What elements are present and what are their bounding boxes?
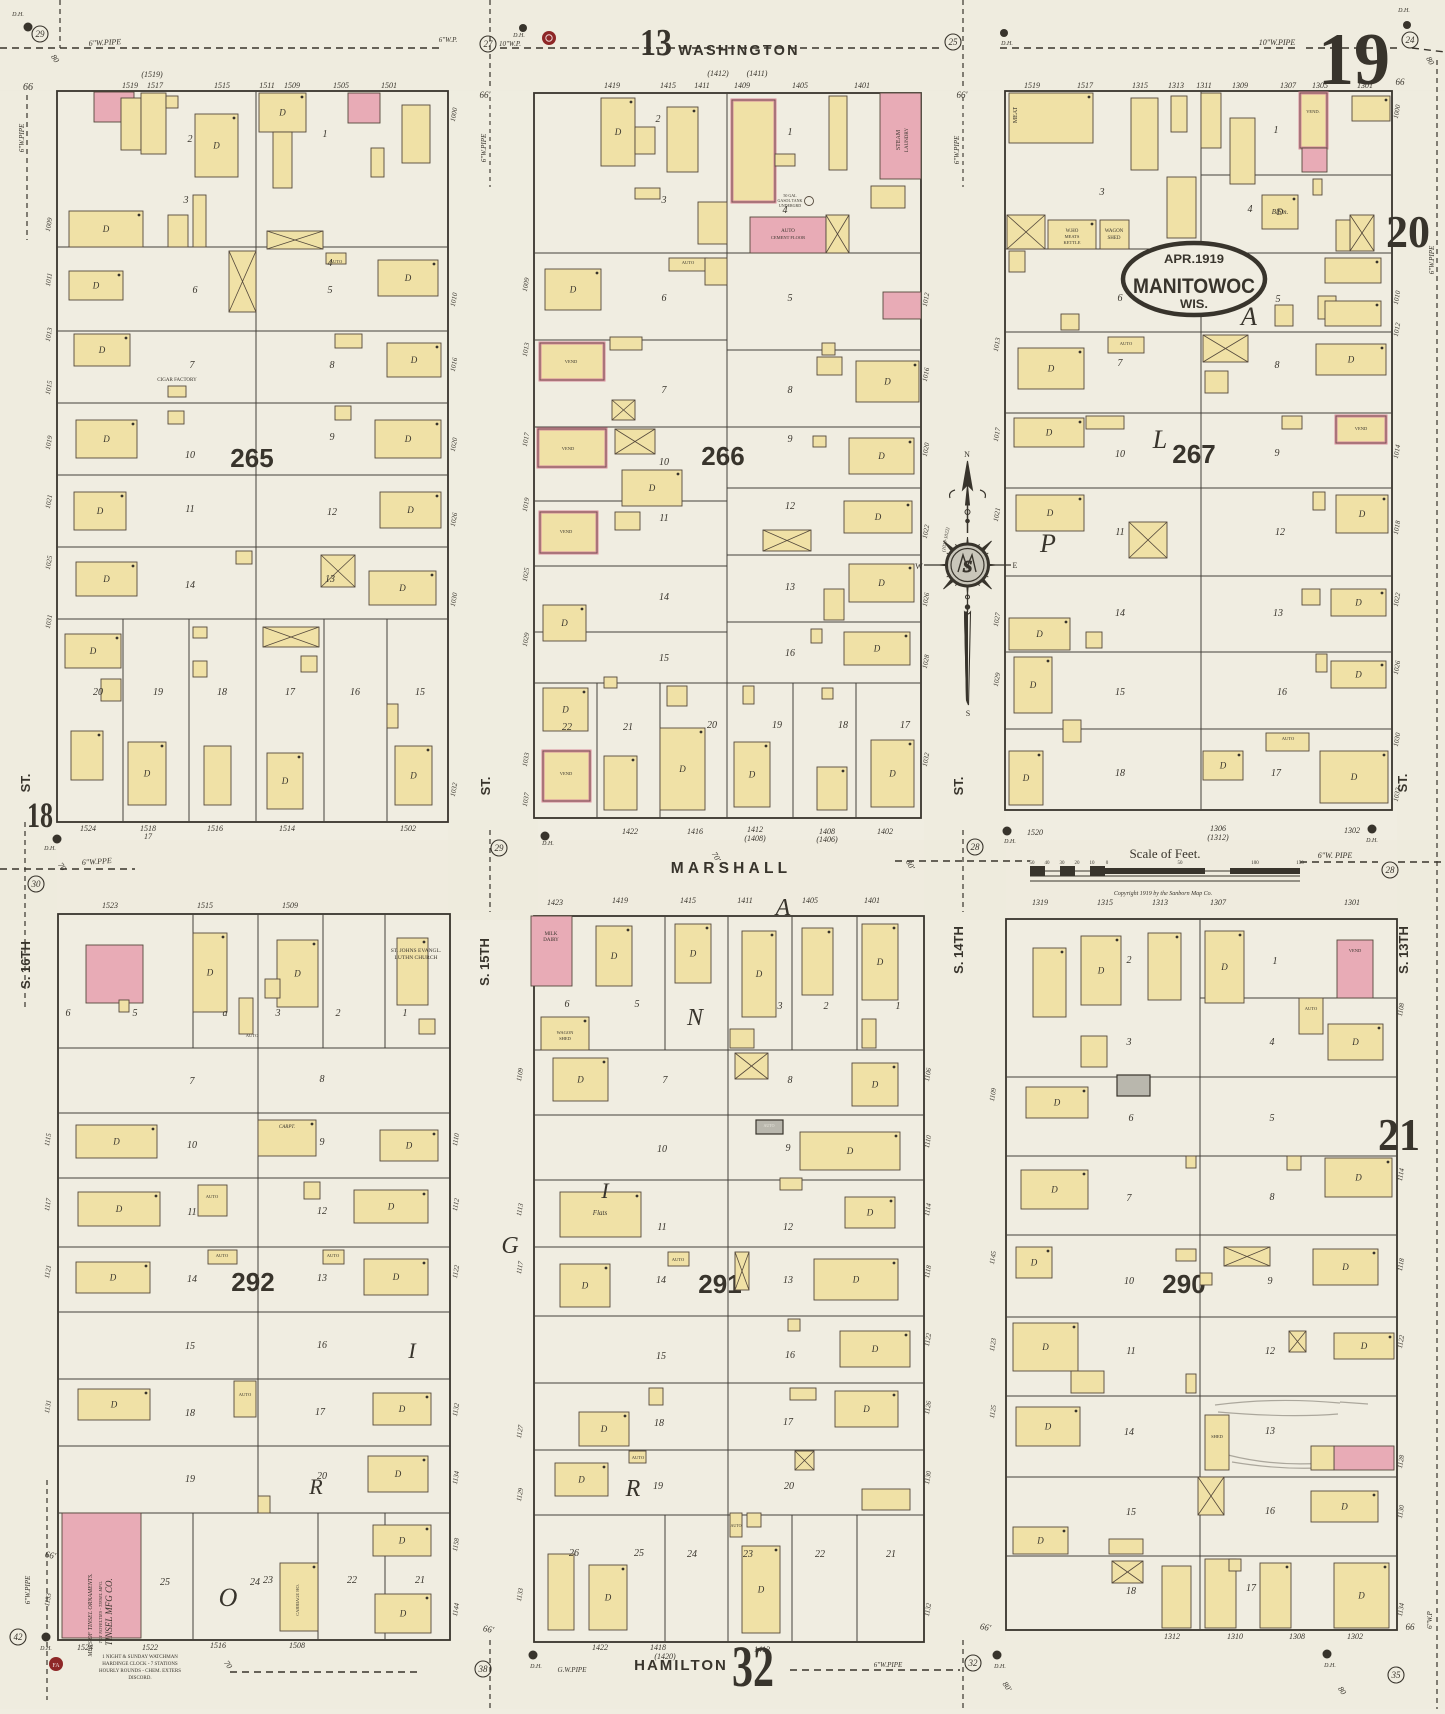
svg-text:19: 19 [772, 720, 782, 731]
svg-text:D: D [577, 1475, 585, 1485]
svg-text:23: 23 [263, 1575, 273, 1586]
svg-text:HOURLY ROUNDS - CHEM. EXTERS: HOURLY ROUNDS - CHEM. EXTERS [99, 1669, 181, 1674]
svg-text:D: D [1050, 1185, 1058, 1195]
svg-text:42: 42 [14, 1632, 24, 1642]
svg-text:6"W.PIPE: 6"W.PIPE [88, 37, 121, 48]
svg-text:21: 21 [886, 1549, 896, 1560]
svg-text:ST.: ST. [478, 777, 493, 796]
svg-text:1301: 1301 [1357, 81, 1373, 90]
svg-text:(1411): (1411) [747, 69, 768, 78]
svg-text:TOY NOVELTIES - TINSEL MFG.: TOY NOVELTIES - TINSEL MFG. [98, 1581, 103, 1644]
svg-text:10: 10 [1124, 1276, 1134, 1287]
svg-text:1401: 1401 [854, 81, 870, 90]
svg-text:AUTO: AUTO [763, 1123, 774, 1128]
svg-text:A: A [774, 895, 791, 921]
svg-text:CARPT.: CARPT. [279, 1125, 295, 1130]
svg-text:ST. JOHNS EVANGL.: ST. JOHNS EVANGL. [391, 948, 442, 954]
svg-text:30: 30 [31, 879, 42, 889]
svg-text:1: 1 [896, 1001, 901, 1012]
svg-text:D: D [398, 1404, 406, 1414]
svg-text:12: 12 [317, 1206, 327, 1217]
svg-text:16: 16 [1265, 1506, 1275, 1517]
svg-text:D: D [398, 1536, 406, 1546]
svg-text:2: 2 [188, 134, 193, 145]
svg-text:D: D [92, 281, 100, 291]
svg-text:1302: 1302 [1344, 826, 1360, 835]
svg-text:LUTHN CHURCH: LUTHN CHURCH [395, 955, 438, 961]
svg-text:19: 19 [153, 687, 163, 698]
svg-text:HARDINGE CLOCK - 7 STATIONS: HARDINGE CLOCK - 7 STATIONS [102, 1662, 178, 1667]
svg-text:D.H.: D.H. [512, 33, 525, 39]
svg-text:AUTO: AUTO [1305, 1006, 1318, 1011]
svg-text:D: D [1219, 761, 1227, 771]
svg-text:1307: 1307 [1210, 898, 1227, 907]
svg-text:28: 28 [971, 842, 981, 852]
svg-text:18: 18 [185, 1408, 195, 1419]
svg-text:VEND.: VEND. [1306, 109, 1320, 114]
svg-text:15: 15 [415, 687, 425, 698]
svg-text:1422: 1422 [592, 1643, 608, 1652]
svg-text:1416: 1416 [687, 827, 703, 836]
svg-text:3: 3 [183, 195, 189, 206]
svg-text:D: D [748, 770, 756, 780]
svg-text:6"W.PIPE: 6"W.PIPE [874, 1661, 903, 1669]
svg-text:VEND: VEND [565, 359, 578, 364]
svg-text:D: D [1041, 1342, 1049, 1352]
svg-text:18: 18 [838, 720, 848, 731]
svg-text:32: 32 [732, 1634, 774, 1699]
svg-text:D.H.: D.H. [1323, 1663, 1336, 1669]
svg-text:D: D [1220, 962, 1228, 972]
svg-text:11: 11 [1126, 1346, 1135, 1357]
svg-text:6: 6 [565, 999, 570, 1010]
svg-text:1312: 1312 [1164, 1632, 1180, 1641]
svg-text:AUTO: AUTO [1282, 736, 1295, 741]
svg-text:1515: 1515 [214, 81, 230, 90]
svg-text:D: D [569, 285, 577, 295]
svg-text:5: 5 [328, 285, 333, 296]
svg-text:D: D [392, 1272, 400, 1282]
svg-text:15: 15 [1126, 1507, 1136, 1518]
svg-text:16: 16 [785, 648, 795, 659]
svg-text:1310: 1310 [1227, 1632, 1243, 1641]
svg-text:D: D [678, 764, 686, 774]
svg-text:(1408): (1408) [744, 834, 766, 843]
svg-text:10: 10 [185, 450, 195, 461]
svg-text:290: 290 [1162, 1269, 1205, 1299]
svg-text:1: 1 [403, 1008, 408, 1019]
svg-text:17: 17 [1271, 768, 1282, 779]
svg-text:LAUNDRY: LAUNDRY [905, 128, 910, 153]
svg-text:D: D [96, 506, 104, 516]
svg-text:66: 66 [23, 82, 33, 93]
svg-text:6: 6 [662, 293, 667, 304]
svg-text:1517: 1517 [147, 81, 164, 90]
svg-text:5: 5 [1276, 294, 1281, 305]
svg-text:DISCORD.: DISCORD. [128, 1676, 151, 1681]
svg-text:1520: 1520 [1027, 828, 1043, 837]
svg-text:266: 266 [701, 441, 744, 471]
svg-text:(1519): (1519) [141, 70, 163, 79]
svg-text:9: 9 [788, 434, 793, 445]
svg-text:10: 10 [1090, 861, 1096, 866]
svg-text:16: 16 [317, 1340, 327, 1351]
svg-text:D: D [576, 1075, 584, 1085]
svg-text:D: D [406, 505, 414, 515]
svg-text:6: 6 [193, 285, 198, 296]
svg-text:1516: 1516 [210, 1641, 226, 1650]
svg-text:18: 18 [217, 687, 227, 698]
svg-text:1301: 1301 [1344, 898, 1360, 907]
svg-text:D.H.: D.H. [993, 1664, 1006, 1670]
svg-text:6: 6 [1118, 293, 1123, 304]
svg-text:R: R [625, 1476, 641, 1502]
svg-text:D: D [1035, 629, 1043, 639]
svg-text:1401: 1401 [864, 896, 880, 905]
svg-text:3: 3 [1126, 1037, 1132, 1048]
svg-text:17: 17 [783, 1417, 794, 1428]
svg-text:12: 12 [327, 507, 337, 518]
svg-text:L: L [1152, 425, 1167, 454]
svg-text:20: 20 [93, 687, 103, 698]
svg-text:N: N [686, 1005, 705, 1031]
svg-text:D: D [1360, 1341, 1368, 1351]
svg-text:APR.1919: APR.1919 [1164, 252, 1224, 266]
svg-text:D: D [866, 1208, 874, 1218]
svg-text:BlSm.: BlSm. [1272, 208, 1289, 216]
svg-text:19: 19 [185, 1474, 195, 1485]
svg-text:24: 24 [687, 1549, 697, 1560]
svg-text:13: 13 [640, 22, 672, 64]
svg-text:D: D [212, 141, 220, 151]
svg-text:40: 40 [1045, 861, 1051, 866]
svg-text:D: D [110, 1400, 118, 1410]
svg-text:AUTO: AUTO [216, 1253, 229, 1258]
svg-text:18: 18 [27, 795, 53, 835]
svg-text:D: D [846, 1146, 854, 1156]
svg-text:21: 21 [1378, 1109, 1420, 1160]
svg-text:AUTO: AUTO [672, 1257, 685, 1262]
svg-text:D: D [404, 434, 412, 444]
svg-text:20: 20 [784, 1481, 794, 1492]
svg-text:14: 14 [185, 580, 195, 591]
svg-text:17: 17 [144, 832, 153, 841]
svg-text:D: D [394, 1469, 402, 1479]
svg-text:D: D [281, 776, 289, 786]
svg-text:25: 25 [949, 37, 959, 47]
svg-text:100: 100 [1251, 861, 1259, 866]
svg-text:D: D [610, 951, 618, 961]
svg-text:Flats: Flats [592, 1209, 608, 1217]
svg-text:10: 10 [187, 1140, 197, 1151]
svg-text:10: 10 [659, 457, 669, 468]
svg-text:D: D [1045, 428, 1053, 438]
svg-text:19: 19 [653, 1481, 663, 1492]
svg-text:11: 11 [187, 1207, 196, 1218]
svg-text:2: 2 [824, 1001, 829, 1012]
svg-text:50: 50 [1178, 861, 1184, 866]
svg-text:66: 66 [1396, 77, 1406, 87]
svg-text:WAGON: WAGON [1105, 229, 1124, 234]
svg-text:1516: 1516 [207, 824, 223, 833]
svg-text:D: D [888, 769, 896, 779]
svg-text:265: 265 [230, 443, 273, 473]
svg-text:D: D [102, 224, 110, 234]
svg-text:G: G [501, 1233, 518, 1259]
svg-text:S. 14TH: S. 14TH [951, 926, 966, 974]
svg-text:1523: 1523 [102, 901, 118, 910]
svg-text:25: 25 [634, 1548, 644, 1559]
svg-text:MANITOWOC: MANITOWOC [1133, 275, 1255, 298]
svg-text:4: 4 [1270, 1037, 1275, 1048]
svg-text:D: D [387, 1202, 395, 1212]
svg-text:20: 20 [1075, 861, 1081, 866]
svg-text:6"W.P.: 6"W.P. [439, 36, 458, 44]
svg-text:12: 12 [1275, 527, 1285, 538]
svg-text:5: 5 [788, 293, 793, 304]
svg-text:AUTO: AUTO [246, 1033, 259, 1038]
svg-text:SHED: SHED [1211, 1434, 1224, 1439]
svg-text:27: 27 [484, 39, 494, 49]
svg-text:9: 9 [330, 432, 335, 443]
svg-text:13: 13 [785, 582, 795, 593]
svg-text:13: 13 [317, 1273, 327, 1284]
svg-text:21: 21 [415, 1575, 425, 1586]
svg-text:AUTO: AUTO [730, 1523, 741, 1528]
svg-text:1319: 1319 [1032, 898, 1048, 907]
svg-text:G.W.PIPE: G.W.PIPE [558, 1666, 588, 1674]
svg-text:D: D [873, 644, 881, 654]
svg-text:1: 1 [788, 127, 793, 138]
svg-text:D: D [877, 451, 885, 461]
svg-text:22: 22 [562, 722, 572, 733]
svg-text:6"W.PIPE: 6"W.PIPE [18, 123, 26, 152]
svg-text:1418: 1418 [650, 1643, 666, 1652]
svg-text:D: D [112, 1137, 120, 1147]
svg-text:AUTO: AUTO [632, 1455, 645, 1460]
svg-text:AUTO: AUTO [1120, 341, 1133, 346]
svg-text:TINSEL MFG CO.: TINSEL MFG CO. [104, 1578, 114, 1646]
svg-text:D: D [757, 1585, 765, 1595]
svg-text:D: D [404, 273, 412, 283]
svg-text:1415: 1415 [660, 81, 676, 90]
svg-text:D: D [1354, 1173, 1362, 1183]
svg-text:6"W.PIPE: 6"W.PIPE [24, 1575, 32, 1604]
svg-text:S. 13TH: S. 13TH [1396, 926, 1411, 974]
svg-text:1511: 1511 [259, 81, 274, 90]
svg-text:AUTO: AUTO [682, 260, 695, 265]
svg-text:13: 13 [783, 1275, 793, 1286]
svg-text:3: 3 [777, 1001, 783, 1012]
svg-text:D: D [1022, 773, 1030, 783]
svg-text:D: D [1340, 1502, 1348, 1512]
svg-text:E: E [1013, 561, 1018, 570]
svg-text:D: D [614, 127, 622, 137]
svg-text:D: D [1341, 1262, 1349, 1272]
svg-text:29: 29 [36, 29, 46, 39]
svg-text:1412: 1412 [754, 1645, 770, 1654]
svg-text:1315: 1315 [1132, 81, 1148, 90]
svg-text:35: 35 [1391, 1670, 1402, 1680]
svg-text:20: 20 [707, 720, 717, 731]
svg-text:D: D [1044, 1422, 1052, 1432]
svg-text:24: 24 [250, 1577, 260, 1588]
svg-text:SHED: SHED [559, 1036, 572, 1041]
svg-text:a: a [223, 1008, 228, 1019]
svg-text:22: 22 [815, 1549, 825, 1560]
svg-text:D: D [877, 578, 885, 588]
svg-text:1305: 1305 [1312, 81, 1328, 90]
svg-text:D.H.: D.H. [39, 1646, 52, 1652]
svg-text:VEND: VEND [1355, 426, 1368, 431]
svg-text:1509: 1509 [284, 81, 300, 90]
svg-text:D: D [89, 646, 97, 656]
svg-text:AUTO: AUTO [206, 1194, 219, 1199]
svg-text:D: D [600, 1424, 608, 1434]
svg-text:DAIRY: DAIRY [543, 938, 559, 943]
svg-text:1307: 1307 [1280, 81, 1297, 90]
svg-text:FA: FA [52, 1663, 60, 1669]
svg-text:D.H.: D.H. [1365, 838, 1378, 844]
svg-text:1508: 1508 [289, 1641, 305, 1650]
svg-text:(1412): (1412) [707, 69, 729, 78]
svg-text:D: D [115, 1204, 123, 1214]
svg-text:O: O [219, 1583, 238, 1612]
svg-text:2: 2 [1127, 955, 1132, 966]
svg-text:D: D [102, 574, 110, 584]
svg-text:D: D [874, 512, 882, 522]
svg-text:D: D [561, 705, 569, 715]
svg-text:1415: 1415 [680, 896, 696, 905]
svg-text:6"W.P: 6"W.P [1426, 1610, 1434, 1628]
svg-text:1524: 1524 [77, 1643, 93, 1652]
svg-text:30: 30 [1060, 861, 1066, 866]
svg-text:3: 3 [275, 1008, 281, 1019]
svg-text:1505: 1505 [333, 81, 349, 90]
svg-text:AUTO: AUTO [327, 1253, 340, 1258]
svg-text:VEND: VEND [560, 771, 573, 776]
svg-text:22: 22 [347, 1575, 357, 1586]
svg-text:8: 8 [788, 385, 793, 396]
svg-text:1419: 1419 [612, 896, 628, 905]
svg-text:MILK: MILK [545, 932, 558, 937]
svg-text:1412: 1412 [747, 825, 763, 834]
svg-text:267: 267 [1172, 439, 1215, 469]
svg-text:D: D [1351, 1037, 1359, 1047]
svg-text:12: 12 [785, 501, 795, 512]
svg-text:D: D [1347, 355, 1355, 365]
svg-text:1522: 1522 [142, 1643, 158, 1652]
svg-text:D: D [206, 968, 214, 978]
svg-text:1313: 1313 [1152, 898, 1168, 907]
svg-text:13: 13 [1265, 1426, 1275, 1437]
svg-text:292: 292 [231, 1267, 274, 1297]
svg-text:MARSHALL: MARSHALL [671, 860, 792, 877]
svg-text:D: D [109, 1273, 117, 1283]
svg-text:D.H.: D.H. [529, 1664, 542, 1670]
svg-text:D: D [1046, 508, 1054, 518]
svg-text:VEND: VEND [1349, 948, 1362, 953]
svg-text:1302: 1302 [1347, 1632, 1363, 1641]
svg-text:12: 12 [1265, 1346, 1275, 1357]
svg-text:D: D [862, 1404, 870, 1414]
svg-text:9: 9 [320, 1137, 325, 1148]
svg-text:21: 21 [623, 722, 633, 733]
svg-text:D.H.: D.H. [1003, 839, 1016, 845]
svg-text:1: 1 [1274, 125, 1279, 136]
svg-text:23: 23 [743, 1549, 753, 1560]
svg-text:17: 17 [1246, 1583, 1257, 1594]
svg-text:66': 66' [480, 90, 492, 100]
svg-text:5: 5 [133, 1008, 138, 1019]
svg-text:29: 29 [495, 843, 505, 853]
svg-text:11: 11 [659, 513, 668, 524]
svg-text:WASHINGTON: WASHINGTON [678, 43, 800, 59]
svg-text:MEATS: MEATS [1065, 234, 1080, 239]
svg-text:1309: 1309 [1232, 81, 1248, 90]
svg-text:1517: 1517 [1077, 81, 1094, 90]
svg-text:17: 17 [900, 720, 911, 731]
svg-text:(1312): (1312) [1207, 833, 1229, 842]
svg-text:S: S [966, 709, 970, 718]
svg-text:16: 16 [350, 687, 360, 698]
svg-text:1514: 1514 [279, 824, 295, 833]
svg-text:D: D [1354, 670, 1362, 680]
svg-text:STEAM: STEAM [896, 129, 902, 150]
svg-text:4: 4 [1248, 204, 1253, 215]
svg-text:1308: 1308 [1289, 1632, 1305, 1641]
svg-text:D: D [1030, 1258, 1038, 1268]
svg-text:11: 11 [657, 1222, 666, 1233]
svg-text:17: 17 [315, 1407, 326, 1418]
svg-text:VEND: VEND [562, 446, 575, 451]
svg-text:D: D [1097, 966, 1105, 976]
svg-text:AUTO: AUTO [239, 1392, 252, 1397]
svg-text:MEAT: MEAT [1013, 107, 1019, 124]
svg-text:CIGAR FACTORY: CIGAR FACTORY [157, 378, 197, 383]
svg-text:R: R [308, 1474, 323, 1499]
svg-text:1411: 1411 [737, 896, 752, 905]
svg-text:1501: 1501 [381, 81, 397, 90]
svg-text:13: 13 [325, 574, 335, 585]
svg-text:1 NIGHT & SUNDAY WATCHMAN: 1 NIGHT & SUNDAY WATCHMAN [102, 1655, 178, 1660]
svg-text:1519: 1519 [122, 81, 138, 90]
svg-text:8: 8 [788, 1075, 793, 1086]
svg-text:28: 28 [1386, 865, 1396, 875]
svg-text:1422: 1422 [622, 827, 638, 836]
svg-text:D: D [1036, 1536, 1044, 1546]
svg-text:D: D [883, 377, 891, 387]
svg-text:HAMILTON: HAMILTON [634, 1657, 728, 1674]
svg-text:19: 19 [1318, 19, 1390, 101]
svg-text:10: 10 [1115, 449, 1125, 460]
svg-text:D: D [871, 1080, 879, 1090]
svg-text:3: 3 [1099, 187, 1105, 198]
svg-text:ST.: ST. [18, 774, 33, 793]
svg-text:6: 6 [66, 1008, 71, 1019]
svg-text:D: D [143, 769, 151, 779]
svg-text:1315: 1315 [1097, 898, 1113, 907]
svg-text:D.H.: D.H. [1397, 8, 1410, 14]
svg-text:1409: 1409 [734, 81, 750, 90]
svg-text:WAGON: WAGON [557, 1030, 574, 1035]
svg-text:18: 18 [1115, 768, 1125, 779]
svg-text:P: P [1039, 529, 1056, 558]
svg-text:Scale of Feet.: Scale of Feet. [1129, 846, 1200, 861]
svg-text:D: D [409, 771, 417, 781]
svg-text:D: D [1053, 1098, 1061, 1108]
svg-text:1423: 1423 [547, 898, 563, 907]
